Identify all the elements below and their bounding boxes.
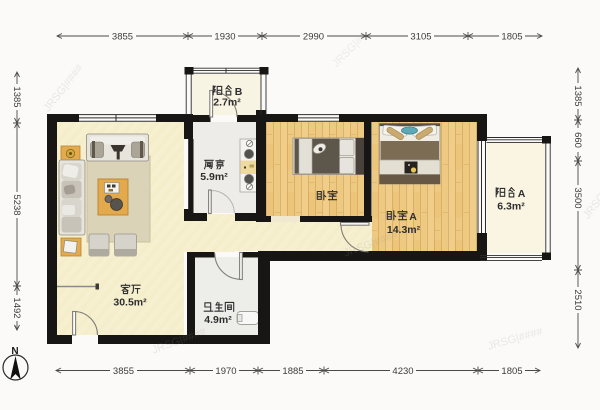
svg-text:2990: 2990 [303,32,324,43]
svg-text:5.9m²: 5.9m² [200,171,228,183]
svg-text:5238: 5238 [11,194,22,215]
svg-text:6.3m²: 6.3m² [497,201,525,213]
svg-text:1385: 1385 [11,86,22,107]
svg-text:660: 660 [572,132,583,148]
svg-text:1492: 1492 [11,297,22,318]
svg-text:3855: 3855 [112,32,133,43]
svg-text:1970: 1970 [215,366,236,377]
svg-text:2510: 2510 [572,289,583,310]
svg-text:4.9m²: 4.9m² [204,314,232,326]
svg-text:A: A [409,211,417,223]
svg-text:A: A [518,188,526,200]
svg-text:1930: 1930 [214,32,235,43]
svg-text:1805: 1805 [501,366,522,377]
svg-text:1805: 1805 [501,32,522,43]
svg-text:1885: 1885 [282,366,303,377]
svg-text:4230: 4230 [392,366,413,377]
svg-text:3855: 3855 [113,366,134,377]
svg-text:3500: 3500 [572,187,583,208]
svg-text:3105: 3105 [410,32,431,43]
svg-text:2.7m²: 2.7m² [213,97,241,109]
svg-text:1385: 1385 [572,85,583,106]
svg-text:30.5m²: 30.5m² [113,297,147,309]
